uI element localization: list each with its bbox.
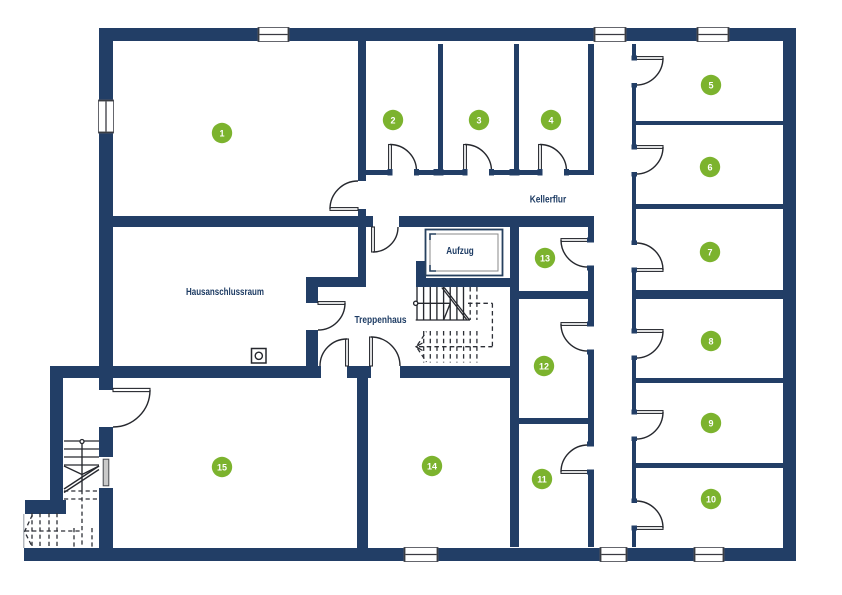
svg-text:8: 8 (708, 336, 713, 346)
svg-text:4: 4 (548, 115, 553, 125)
svg-text:Hausanschlussraum: Hausanschlussraum (186, 287, 264, 298)
svg-text:6: 6 (707, 162, 712, 172)
svg-text:Kellerflur: Kellerflur (530, 195, 567, 206)
svg-text:9: 9 (708, 418, 713, 428)
svg-text:2: 2 (390, 115, 395, 125)
svg-text:7: 7 (707, 247, 712, 257)
svg-text:Aufzug: Aufzug (446, 246, 474, 257)
svg-text:13: 13 (540, 253, 550, 263)
svg-text:11: 11 (537, 474, 547, 484)
svg-text:3: 3 (476, 115, 481, 125)
svg-text:Treppenhaus: Treppenhaus (355, 315, 407, 326)
svg-text:15: 15 (217, 462, 227, 472)
svg-text:12: 12 (539, 361, 549, 371)
svg-text:5: 5 (708, 80, 713, 90)
svg-text:10: 10 (706, 494, 716, 504)
svg-text:1: 1 (219, 128, 224, 138)
svg-text:14: 14 (427, 461, 437, 471)
